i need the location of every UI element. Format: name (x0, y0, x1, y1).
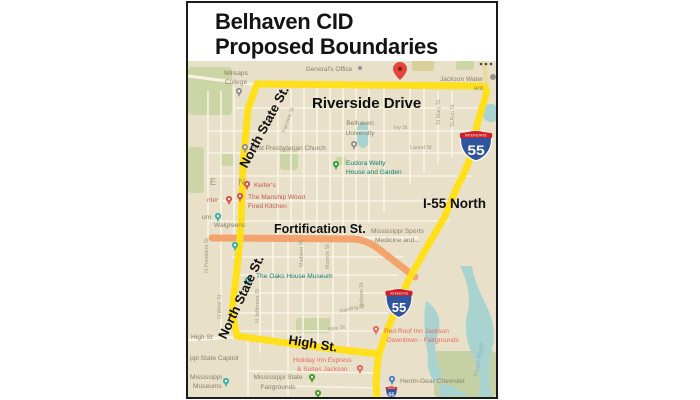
keifers-label: Keifer's (254, 182, 276, 189)
map: INTERSTATE 55 (188, 61, 496, 397)
fortification-overlay: Fortification St. (274, 222, 366, 236)
page-title-line2: Proposed Boundaries (215, 34, 496, 59)
jackson-water-label1: Jackson Water (440, 76, 484, 83)
museum-partial-label: um (202, 214, 212, 221)
fairgrounds-label2: Fairgrounds (260, 384, 296, 391)
map-ellipsis-artifact (480, 63, 493, 66)
jackson-water-poi-icon (490, 74, 496, 80)
eudora-welty-label1: Eudora Welty (346, 160, 386, 167)
street-label-ivy: Ivy St (394, 125, 408, 131)
belhaven-university-label2: University (346, 130, 376, 137)
belhaven-university-label1: Belhaven (346, 120, 374, 127)
holiday-inn-label2: & Suites Jackson (297, 366, 348, 373)
center-partial-label: nter (207, 197, 219, 204)
fairgrounds-label1: Mississippi State (253, 374, 302, 381)
red-roof-label1: Red Roof Inn Jackson (384, 328, 449, 335)
jackson-water-label2: ent (474, 85, 483, 92)
millsaps-label2: College (225, 79, 248, 86)
manship-label2: Fired Kitchen (248, 203, 287, 210)
generals-office-pin-icon (358, 66, 362, 70)
i55-highlight-tail (376, 352, 379, 397)
holiday-inn-label1: Holiday Inn Express (293, 357, 352, 364)
riverside-drive-overlay: Riverside Drive (312, 95, 421, 112)
red-roof-label2: Downtown - Fairgrounds (387, 337, 460, 344)
ms-sports-label2: Medicine and... (375, 237, 420, 244)
millsaps-label1: Millsaps (224, 70, 249, 77)
page: Belhaven CID Proposed Boundaries INTERST… (0, 0, 700, 400)
capitol-label: ppi State Capitol (190, 355, 239, 362)
street-label-n-president: N President St (204, 238, 210, 273)
page-title-line1: Belhaven CID (215, 9, 496, 34)
street-label-n-west: N West St (217, 294, 223, 319)
ms-museums-label2: Museums (193, 383, 222, 390)
high-st-small-label: High St (191, 334, 213, 341)
ms-sports-label1: Mississippi Sports (371, 228, 424, 235)
walgreens-label: Walgreens (214, 222, 246, 229)
street-label-monroe: Monroe St (325, 244, 331, 269)
ms-museums-label1: Mississippi (190, 374, 222, 381)
belhaven-district-letters: E N (210, 177, 255, 187)
herrin-gear-label: Herrin-Gear Chevrolet (400, 378, 465, 385)
street-label-st-ann: St Ann St (450, 104, 456, 127)
street-label-laurel: Laurel St (410, 145, 432, 151)
i55-shield-small-bottom (386, 386, 398, 397)
generals-office-label: General's Office (306, 66, 353, 73)
i55-north-overlay: I-55 North (423, 196, 486, 211)
map-card: Belhaven CID Proposed Boundaries INTERST… (186, 1, 498, 399)
street-label-madison: Madison St (299, 240, 305, 267)
street-label-n-jefferson: N Jefferson St (255, 288, 261, 323)
oaks-museum-label: The Oaks House Museum (256, 273, 333, 280)
street-label-st-mary: St Mary St (436, 99, 442, 125)
eudora-welty-label2: House and Garden (346, 169, 402, 176)
manship-label1: The Manship Wood (248, 194, 305, 201)
title-block: Belhaven CID Proposed Boundaries (188, 3, 496, 61)
